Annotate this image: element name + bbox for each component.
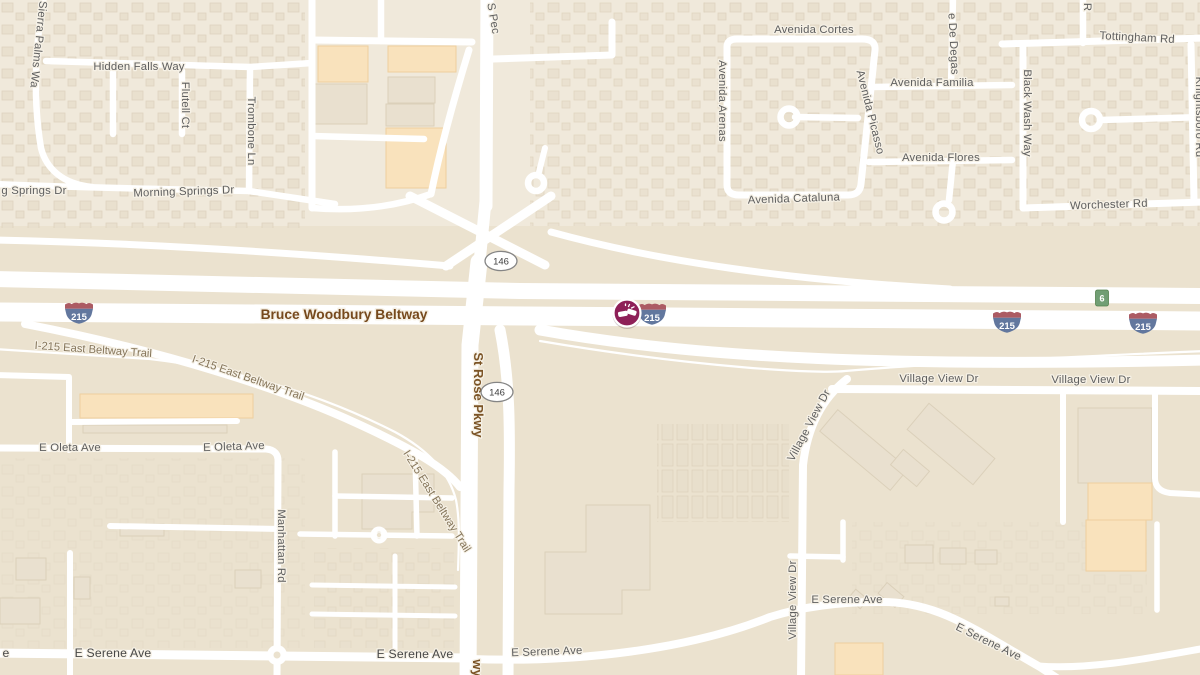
map-feature <box>69 421 237 422</box>
road-label: E Serene Ave <box>377 647 454 661</box>
road-label: Village View Dr <box>1051 374 1130 386</box>
map-feature <box>1078 408 1152 483</box>
map-feature <box>83 425 227 433</box>
map-feature <box>835 643 883 675</box>
road-label: E Serene Ave <box>811 594 882 606</box>
map-feature <box>388 77 435 103</box>
route-146-shield: 146 <box>481 382 513 401</box>
map-feature <box>1088 483 1152 520</box>
svg-text:215: 215 <box>1135 322 1152 333</box>
map-feature <box>312 136 424 139</box>
map-feature <box>314 548 454 648</box>
svg-text:6: 6 <box>1099 293 1104 303</box>
map-feature <box>940 548 966 564</box>
map-feature <box>1100 117 1200 120</box>
road-label: Village View Dr <box>787 560 799 639</box>
map-feature <box>0 458 305 648</box>
road-label: Trombone Ln <box>245 97 257 166</box>
road-label: Bruce Woodbury Beltway <box>261 307 428 322</box>
map-feature <box>995 597 1009 606</box>
map-feature <box>993 312 1021 318</box>
route-146-shield: 146 <box>485 251 517 270</box>
map-feature <box>638 304 666 310</box>
road-label: Manhattan Rd <box>275 509 287 582</box>
road-label: Flutell Ct <box>179 82 191 129</box>
map-feature <box>318 46 368 82</box>
map-feature <box>110 526 281 529</box>
road-label: Avenida Flores <box>902 152 980 164</box>
road-label: R <box>1081 3 1093 11</box>
map-viewport[interactable]: Sierra Palms WaHidden Falls WayFlutell C… <box>0 0 1200 675</box>
svg-text:215: 215 <box>71 312 88 323</box>
map-feature <box>790 556 843 557</box>
exit-badge-6: 6 <box>1096 290 1109 306</box>
road-label: e <box>3 646 10 660</box>
map-feature <box>657 424 789 522</box>
map-feature <box>16 558 46 580</box>
svg-text:146: 146 <box>489 388 505 399</box>
road-label: Knightsboro Rd <box>1193 77 1200 158</box>
map-feature <box>312 614 455 616</box>
road-label: E Serene Ave <box>75 646 152 660</box>
map-feature <box>905 545 933 563</box>
traffic-incident-marker[interactable] <box>613 300 642 330</box>
road-label: wy <box>470 658 485 675</box>
road-label: E Serene Ave <box>511 645 583 659</box>
map-feature <box>74 577 90 599</box>
map-feature <box>313 84 367 124</box>
map-svg: Sierra Palms WaHidden Falls WayFlutell C… <box>0 0 1200 675</box>
map-feature <box>1129 313 1157 319</box>
road-label: g Springs Dr <box>1 185 66 197</box>
map-feature <box>486 0 487 206</box>
map-feature <box>388 46 456 72</box>
road-label: E Oleta Ave <box>39 442 101 454</box>
map-feature <box>949 160 953 200</box>
road-label: E Oleta Ave <box>203 440 265 454</box>
map-feature <box>975 550 997 564</box>
map-feature <box>300 534 452 536</box>
map-feature <box>312 40 472 42</box>
road-label: Avenida Arenas <box>716 60 728 142</box>
road-label: Black Wash Way <box>1021 69 1033 156</box>
svg-text:215: 215 <box>644 313 661 324</box>
markers-layer <box>613 300 642 330</box>
map-feature <box>0 598 40 624</box>
map-feature <box>80 394 253 418</box>
road-label: Avenida Cortes <box>774 24 854 36</box>
map-feature <box>530 0 705 226</box>
map-feature <box>377 533 381 537</box>
road-label: Avenida Familia <box>890 77 974 89</box>
road-label: Village View Dr <box>899 373 978 385</box>
svg-text:146: 146 <box>493 257 509 268</box>
map-feature <box>832 389 1200 391</box>
map-feature <box>386 104 434 126</box>
map-feature <box>629 305 630 307</box>
map-feature <box>312 585 455 587</box>
map-feature <box>1086 520 1146 571</box>
map-feature <box>795 117 858 118</box>
map-feature <box>235 570 261 588</box>
map-feature <box>274 652 281 659</box>
road-label: Hidden Falls Way <box>93 61 184 73</box>
map-feature <box>65 303 93 309</box>
svg-text:215: 215 <box>999 321 1016 332</box>
